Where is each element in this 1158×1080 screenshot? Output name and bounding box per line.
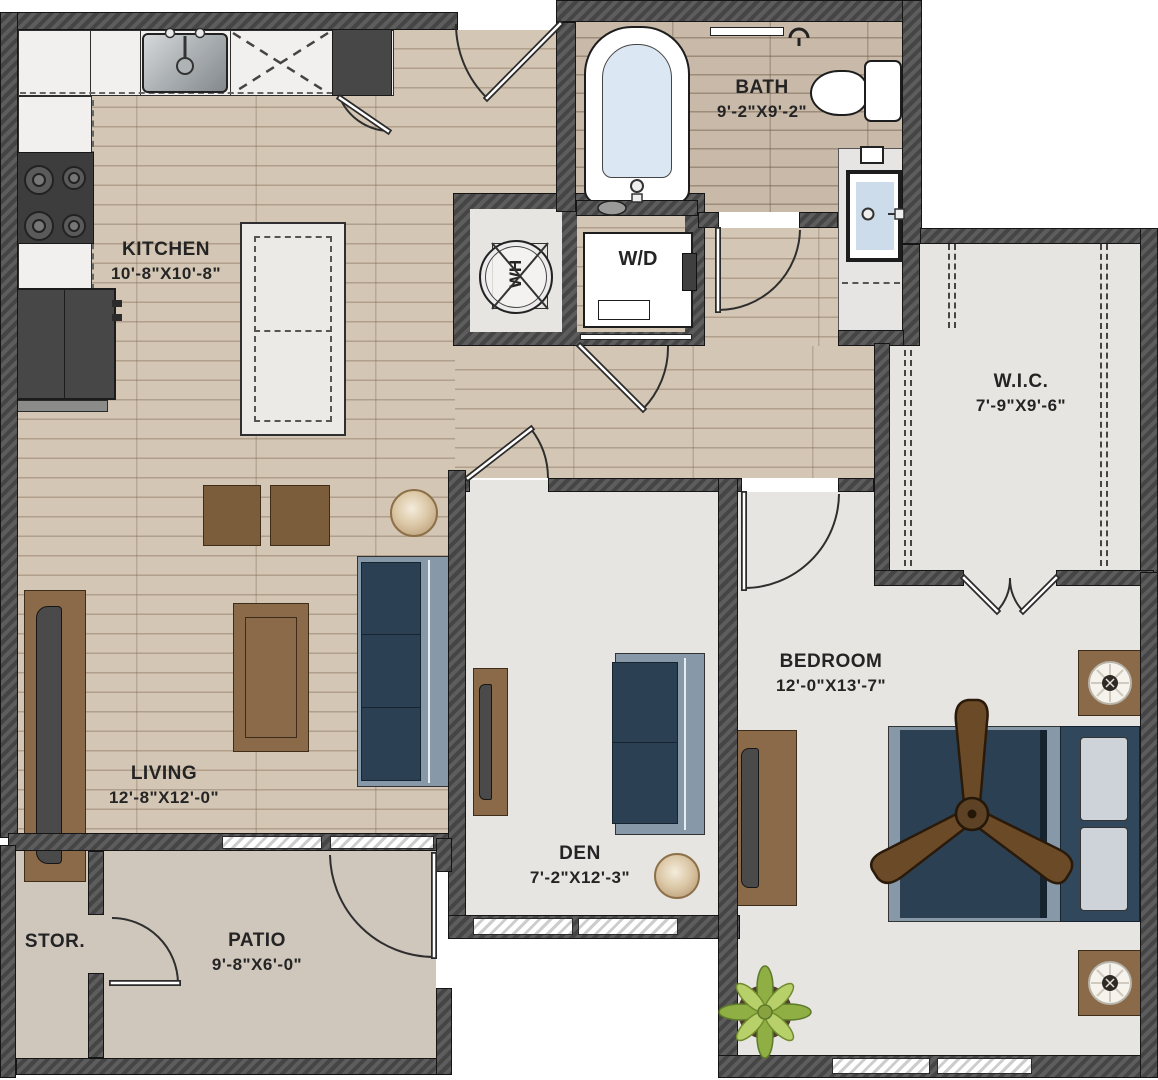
door-hinge-plate [682, 253, 697, 291]
pillow [1080, 737, 1128, 821]
wall-tub-left [556, 22, 576, 212]
island-dashed-crossbar [254, 330, 332, 332]
wd-bifold-track [580, 334, 692, 340]
den-window [473, 918, 573, 935]
toilet-tank [864, 60, 902, 122]
hall-floor [455, 345, 874, 478]
bed-fold-line [1040, 730, 1047, 918]
patio-door-opening [330, 836, 434, 849]
corner-pantry-cabinet [332, 28, 392, 96]
refrigerator [14, 288, 116, 400]
living-tv [36, 606, 62, 864]
wic-shelf-rod-right [1100, 244, 1108, 566]
wall-wic-left [874, 343, 890, 586]
kitchen-name: KITCHEN [111, 238, 221, 263]
wall-hall-bottom-b [548, 478, 742, 492]
living-dims: 12'-8"X12'-0" [109, 787, 219, 809]
cushion-seam [361, 707, 421, 708]
kitchen-sink [142, 33, 228, 93]
bathtub-basin [602, 44, 672, 178]
cushion-seam [361, 634, 421, 635]
wall-hall-bottom-c [838, 478, 874, 492]
bedroom-window [832, 1058, 930, 1074]
bedroom-label: BEDROOM 12'-0"X13'-7" [776, 650, 886, 697]
bedroom-dims: 12'-0"X13'-7" [776, 675, 886, 697]
wall-patio-bottom [16, 1058, 452, 1075]
wic-shelf-rod-left [904, 350, 912, 566]
refrigerator-ledge [14, 400, 108, 412]
island-inner-dashed [254, 236, 332, 422]
wic-shelf-rod-top [948, 244, 956, 328]
wall-tub-bottom [576, 200, 698, 216]
entry-corridor-floor [458, 30, 558, 195]
living-name: LIVING [109, 762, 219, 787]
wic-label: W.I.C. 7'-9"X9'-6" [976, 370, 1066, 417]
vanity-sink-basin [856, 182, 894, 250]
storage-label: STOR. [25, 930, 85, 955]
den-label: DEN 7'-2"X12'-3" [530, 842, 630, 889]
pillow [1080, 827, 1128, 911]
nightstand [1078, 650, 1142, 716]
water-heater-label: WH [506, 259, 526, 289]
counter-divider [230, 30, 231, 96]
wall-patio-right-b [436, 988, 452, 1075]
wall-patio-left [0, 845, 16, 1078]
wall-wic-right [1140, 228, 1158, 588]
wall-left [0, 12, 18, 838]
wall-top-bath [556, 0, 922, 22]
wall-vanity-right [902, 244, 920, 346]
bath-label: BATH 9'-2"X9'-2" [717, 76, 807, 123]
kitchen-label: KITCHEN 10'-8"X10'-8" [111, 238, 221, 285]
den-window [578, 918, 678, 935]
stove [16, 152, 94, 244]
wall-bedroom-right [1140, 572, 1158, 1078]
towel-bar [710, 27, 784, 36]
wall-top-left [8, 12, 458, 30]
cushion-seam [612, 742, 678, 743]
bedroom-window [937, 1058, 1032, 1074]
wall-den-bedroom-separator [718, 478, 738, 1078]
coffee-table-inlay [245, 617, 297, 738]
wall-bath-bottom-b [799, 212, 838, 228]
wall-storage-top [88, 851, 104, 915]
sofa-arm-line [684, 658, 686, 830]
wic-dims: 7'-9"X9'-6" [976, 395, 1066, 417]
vanity-shelf-box [860, 146, 884, 164]
nightstand [1078, 950, 1142, 1016]
bedroom-name: BEDROOM [776, 650, 886, 675]
floor-plan: WH W/D [0, 0, 1158, 1080]
living-sofa-cushions [361, 562, 421, 781]
patio-dims: 9'-8"X6'-0" [212, 954, 302, 976]
den-dims: 7'-2"X12'-3" [530, 867, 630, 889]
bed-duvet [900, 730, 1040, 918]
wall-wic-top [920, 228, 1158, 244]
washer-dryer-drawer [598, 300, 650, 320]
bath-hall-nook-floor [700, 228, 838, 346]
bath-name: BATH [717, 76, 807, 101]
patio-label: PATIO 9'-8"X6'-0" [212, 929, 302, 976]
wall-bath-bottom-a [698, 212, 719, 228]
refrigerator-door-split [64, 290, 65, 398]
living-window [222, 836, 322, 849]
den-name: DEN [530, 842, 630, 867]
wall-patio-right-a [436, 838, 452, 872]
toilet-bowl [810, 70, 868, 116]
wall-bath-right [902, 0, 922, 244]
wall-storage-bottom [88, 973, 104, 1058]
ottoman [270, 485, 330, 546]
side-table [390, 489, 438, 537]
patio-name: PATIO [212, 929, 302, 954]
wall-wic-bottom-left [874, 570, 964, 586]
wall-vanity-bottom [838, 330, 904, 346]
counter-divider [90, 30, 91, 96]
counter-divider [140, 30, 141, 96]
sofa-arm-line [428, 560, 430, 783]
ottoman [203, 485, 261, 546]
vanity-dashed-line [842, 282, 900, 284]
wic-name: W.I.C. [976, 370, 1066, 395]
storage-name: STOR. [25, 930, 85, 955]
den-tv [479, 684, 492, 800]
bedroom-tv [741, 748, 759, 888]
kitchen-dims: 10'-8"X10'-8" [111, 263, 221, 285]
washer-dryer-label: W/D [593, 248, 683, 271]
bath-dims: 9'-2"X9'-2" [717, 101, 807, 123]
living-label: LIVING 12'-8"X12'-0" [109, 762, 219, 809]
side-table [654, 853, 700, 899]
den-sofa-cushions [612, 662, 678, 824]
